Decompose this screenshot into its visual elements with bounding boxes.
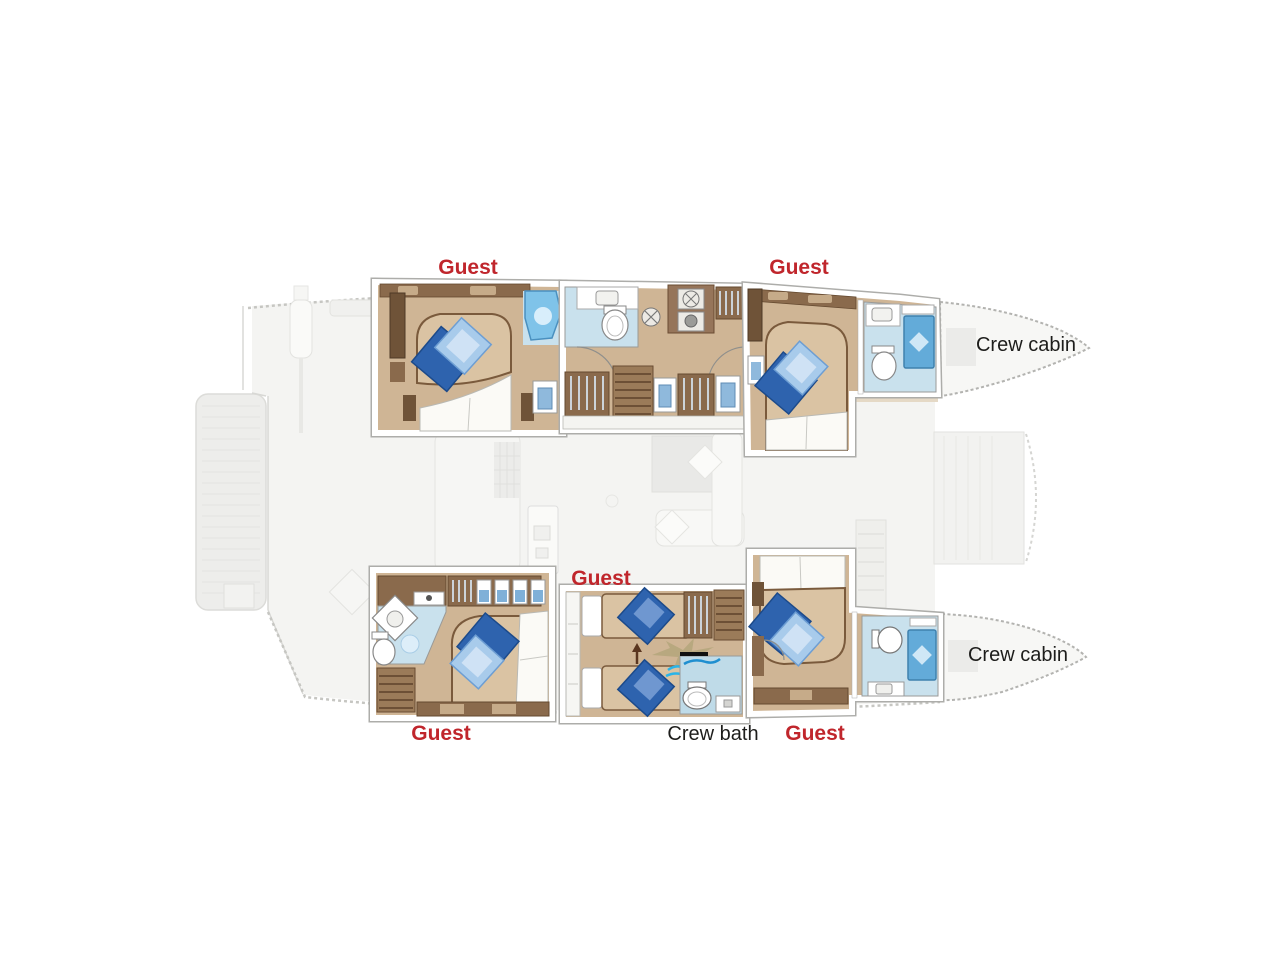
bath-shelf: [910, 618, 936, 626]
sink-icon: [724, 700, 732, 707]
wardrobe: [390, 293, 405, 358]
guest-cabin-bottom-center: [563, 588, 746, 720]
window-sill: [563, 416, 746, 429]
nightstand: [752, 582, 764, 606]
hull-window-glass: [538, 388, 552, 409]
sink-icon: [387, 611, 403, 627]
floor-plan-svg: Guest Guest Guest Guest Guest Crew cabin…: [0, 0, 1280, 960]
shower-drain: [401, 635, 419, 653]
bag: [470, 286, 496, 295]
sink-icon: [876, 684, 892, 694]
foredeck: [934, 432, 1024, 564]
label-guest-top-left: Guest: [438, 256, 498, 279]
guest-cabin-top-left: [375, 282, 563, 433]
label-guest-bottom-left: Guest: [411, 722, 471, 745]
label-guest-bottom-right: Guest: [785, 722, 845, 745]
label-crew-bath: Crew bath: [667, 723, 758, 745]
hull-window-glass: [479, 590, 489, 602]
label-crew-cabin-bottom: Crew cabin: [968, 644, 1068, 666]
corridor-galley-top: [563, 284, 746, 430]
drawer-front: [492, 704, 516, 714]
sink-icon: [596, 291, 618, 305]
drawer-front: [440, 704, 464, 714]
hull-window-glass: [721, 383, 735, 407]
hull-window-glass: [533, 590, 543, 602]
saloon-sofa-right: [712, 432, 742, 546]
bed-pillow-white: [582, 668, 602, 708]
bath-wall: [852, 612, 857, 698]
galley-sink: [534, 526, 550, 540]
bath-shelf: [902, 305, 934, 314]
drawers: [417, 702, 549, 716]
toilet-icon: [878, 627, 902, 653]
bag: [768, 292, 788, 300]
bath-door-mark: [680, 652, 708, 656]
crew-berth-top: [946, 328, 976, 366]
drawer-front: [790, 690, 812, 700]
bed-duvet: [516, 611, 548, 710]
companionway: [856, 520, 886, 608]
hull-window-glass: [497, 590, 507, 602]
hull-window-glass: [515, 590, 525, 602]
ceiling-light: [606, 495, 618, 507]
hull-window-glass: [659, 385, 671, 407]
bed-duvet: [760, 556, 845, 592]
bath-wall: [858, 300, 863, 394]
label-crew-cabin-top: Crew cabin: [976, 334, 1076, 356]
wardrobe: [748, 289, 762, 341]
toilet-icon: [373, 639, 395, 665]
mast-step: [294, 286, 308, 300]
nightstand: [521, 393, 534, 421]
speaker-icon: [685, 315, 697, 327]
toilet-icon: [872, 352, 896, 380]
toilet-tank: [372, 632, 388, 639]
cabinet: [390, 362, 405, 382]
mast: [290, 300, 312, 358]
foredeck-edge-dashed: [1026, 434, 1036, 562]
nightstand: [403, 395, 416, 421]
catamaran-floor-plan: Guest Guest Guest Guest Guest Crew cabin…: [0, 0, 1280, 960]
label-guest-top-right: Guest: [769, 256, 829, 279]
bed-pillow-white: [582, 596, 602, 636]
swim-platform: [196, 394, 266, 610]
label-guest-mid: Guest: [571, 567, 631, 590]
cabinet: [752, 636, 764, 676]
faucet-icon: [426, 595, 432, 601]
hull-window-glass: [751, 362, 761, 380]
bag: [808, 295, 832, 303]
shower-drain: [534, 307, 552, 325]
stairs: [377, 668, 415, 712]
crew-bath-room: [680, 652, 742, 714]
stern-step: [224, 584, 254, 608]
sink-icon: [872, 308, 892, 321]
galley-hob: [536, 548, 548, 558]
guest-cabin-bottom-left: [372, 570, 552, 718]
